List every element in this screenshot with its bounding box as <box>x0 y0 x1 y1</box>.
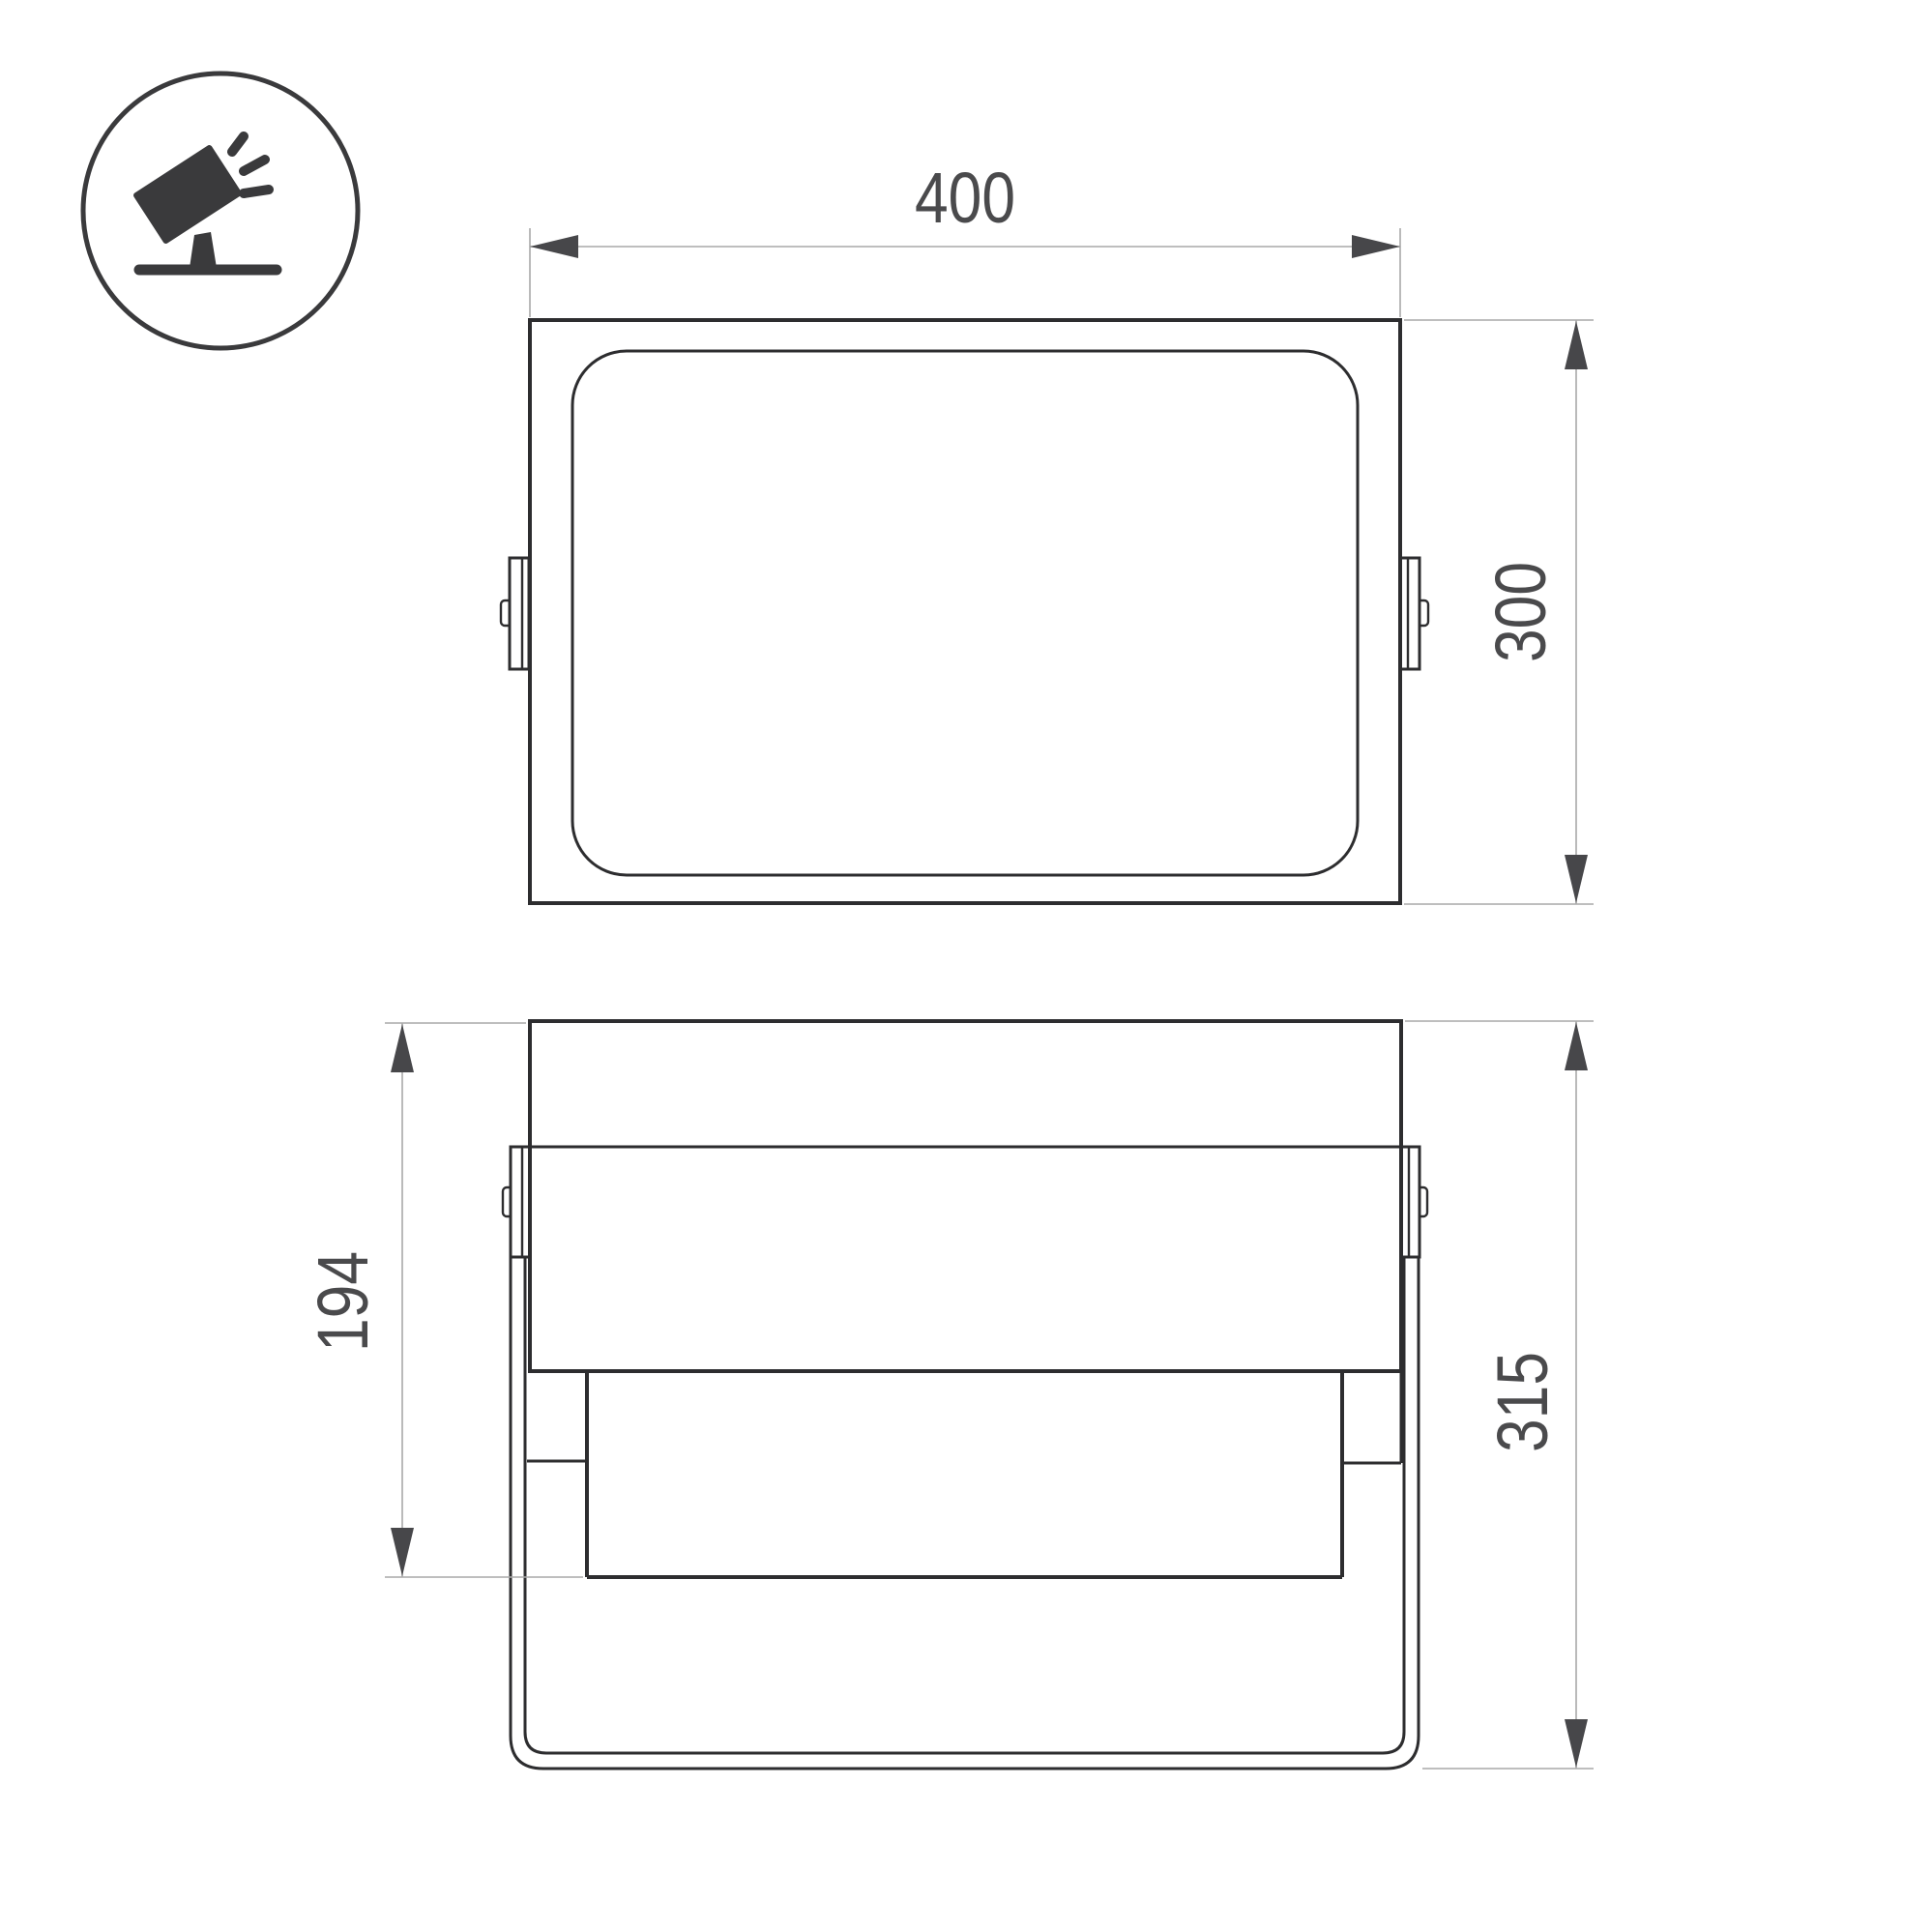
dimension-width-label: 400 <box>915 158 1015 238</box>
dimension-height-label: 300 <box>1480 562 1561 662</box>
arrow-down-icon <box>1565 855 1588 903</box>
dimension-total-height-label: 315 <box>1482 1352 1563 1452</box>
stand-post-icon <box>190 232 217 268</box>
lens-panel-outline <box>572 351 1358 875</box>
arrow-down-icon <box>391 1528 414 1576</box>
side-view <box>503 1021 1427 1769</box>
arrow-left-icon <box>530 235 578 258</box>
top-view <box>501 320 1428 903</box>
dimension-height: 300 <box>1404 320 1594 904</box>
right-hinge-plate <box>1401 1147 1420 1257</box>
floodlight-body-icon <box>132 144 243 245</box>
light-ray-icon <box>244 160 265 171</box>
housing-outline <box>530 320 1400 903</box>
bracket-arm-inner <box>525 1257 1404 1753</box>
light-ray-icon <box>232 136 244 152</box>
dimension-total-height: 315 <box>1405 1021 1594 1769</box>
right-mount-tab <box>1400 558 1420 669</box>
light-ray-icon <box>244 190 269 193</box>
dimension-width: 400 <box>530 158 1400 317</box>
body-outline <box>530 1021 1401 1371</box>
dimension-front-height-label: 194 <box>303 1251 383 1352</box>
left-mount-tab <box>510 558 529 669</box>
tilted-floodlight-icon <box>83 73 358 348</box>
arrow-up-icon <box>1565 1022 1588 1070</box>
arrow-up-icon <box>391 1024 414 1072</box>
drawing-page: 400 300 194 315 <box>0 0 1932 1931</box>
bracket-arm-outer <box>511 1257 1419 1769</box>
left-hinge-plate <box>511 1147 530 1257</box>
icon-circle <box>83 73 358 348</box>
dimension-front-height: 194 <box>303 1023 583 1577</box>
arrow-down-icon <box>1565 1719 1588 1768</box>
arrow-up-icon <box>1565 321 1588 369</box>
technical-drawing-canvas: 400 300 194 315 <box>0 0 1932 1931</box>
arrow-right-icon <box>1352 235 1400 258</box>
